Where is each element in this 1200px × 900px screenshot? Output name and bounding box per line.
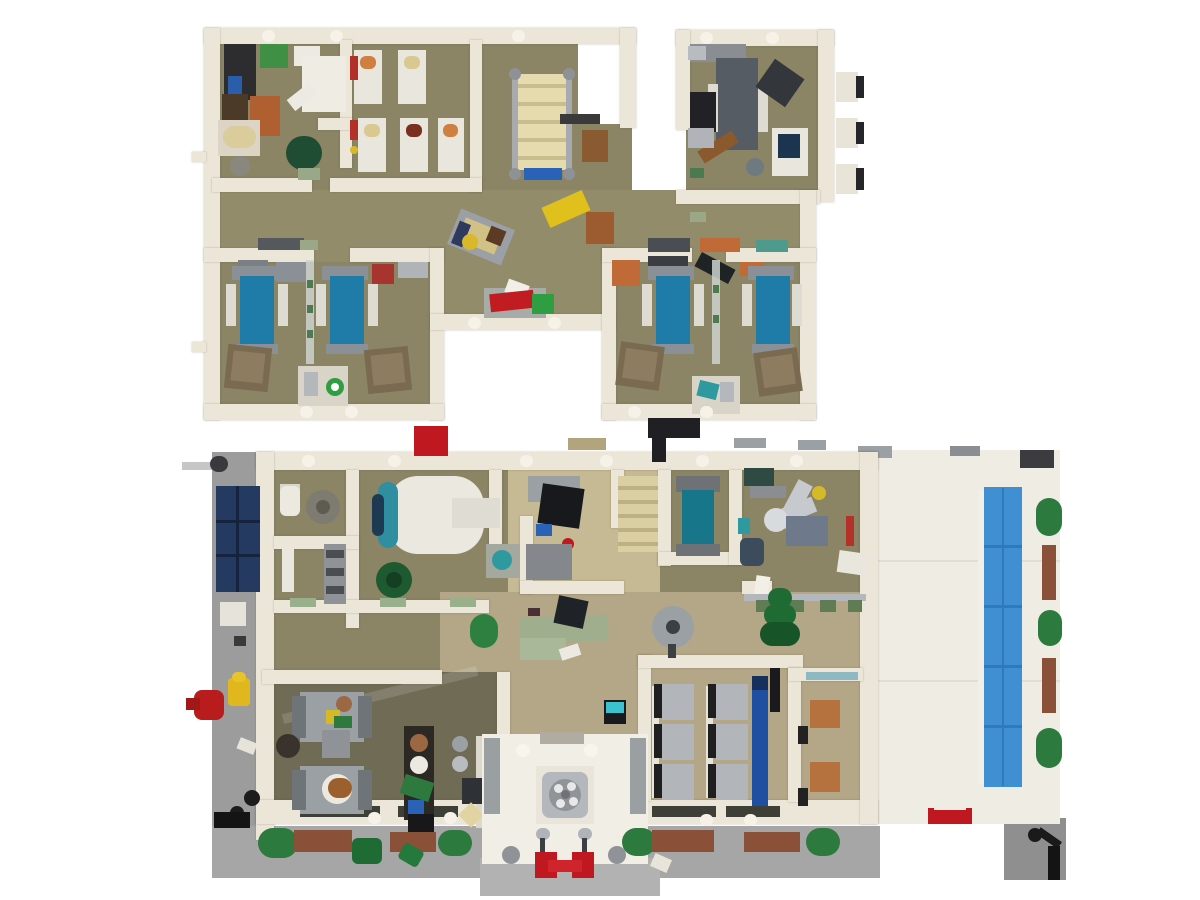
- gstair-tread-1: [618, 486, 658, 490]
- curtain-pleat-3: [820, 600, 836, 612]
- kitchen-pot-1: [452, 736, 468, 752]
- robot-yellow-dot: [812, 486, 826, 500]
- bush-front-1: [258, 828, 298, 858]
- storage-slot-3: [326, 586, 344, 594]
- monitor-screen: [606, 702, 624, 713]
- stud: [790, 455, 803, 467]
- break-croissant: [328, 778, 352, 798]
- porch-pillar-left: [484, 738, 500, 814]
- white-piece-roof-bottom: [934, 798, 966, 810]
- bush-front-4: [806, 828, 840, 856]
- vent-elbow-black: [652, 436, 666, 462]
- wall-breakroom-top: [262, 670, 442, 684]
- porch-pillar-right: [630, 738, 646, 814]
- bench-red-bar: [548, 860, 582, 872]
- paper-roll: [282, 548, 294, 592]
- ground-floor: [0, 0, 1200, 900]
- wall-xray-bottom: [520, 581, 624, 594]
- waiting-chair-arm: [708, 764, 716, 798]
- kitchen-mixer: [462, 778, 484, 804]
- pine-tier-3: [760, 622, 800, 646]
- black-bench-side: [214, 812, 250, 828]
- waiting-chair: [716, 764, 748, 800]
- gstair-tread-2: [618, 500, 658, 504]
- break-t1-green: [334, 716, 352, 728]
- planter-sage-3: [450, 598, 476, 607]
- planter-right-2: [1042, 658, 1056, 713]
- coffee-mug-brown: [410, 734, 428, 752]
- robot-plates: [750, 486, 786, 498]
- waiting-chair-arm: [654, 684, 662, 718]
- reception-stand-1: [798, 726, 808, 744]
- reception-bench-2: [810, 762, 840, 792]
- reception-stand-2: [798, 788, 808, 806]
- break-t1-chair-left: [292, 696, 306, 738]
- mri-bore-navy: [372, 494, 384, 536]
- gstair-tread-4: [618, 528, 658, 532]
- bush-front-2: [438, 830, 472, 856]
- stud: [744, 814, 757, 826]
- brick-gray-top-1: [734, 438, 766, 448]
- waiting-chair-arm: [708, 684, 716, 718]
- black-ball-1: [244, 790, 260, 806]
- sink-center: [316, 500, 330, 514]
- xray-desk: [526, 544, 572, 580]
- brick-tan-top: [568, 438, 606, 450]
- utility-dark-bit: [234, 636, 246, 646]
- bush-front-3: [622, 828, 656, 856]
- plant-round-center: [386, 572, 402, 588]
- robot-bottles: [740, 538, 764, 566]
- mug-teal: [492, 550, 512, 570]
- roof-seam-1: [874, 560, 1060, 562]
- coffee-mug-white: [410, 756, 428, 774]
- roof-cap-gray-2: [950, 446, 980, 456]
- mri-table: [452, 498, 500, 528]
- tealbed-foot: [676, 544, 720, 556]
- divider-blue-cap: [752, 676, 768, 690]
- wall-right-outer: [860, 452, 878, 824]
- waiting-chair: [716, 724, 748, 760]
- solar-line-v: [236, 486, 239, 592]
- gstair-tread-5: [618, 542, 658, 546]
- stud: [444, 812, 457, 824]
- medallion-center: [561, 790, 570, 799]
- robot-base: [786, 516, 828, 546]
- planter-front-3: [652, 830, 714, 852]
- xray-blue-brick: [536, 524, 552, 536]
- brick-gray-top-2: [798, 440, 826, 450]
- break-t1-chair-right: [358, 696, 372, 738]
- medallion-dot-3: [556, 799, 565, 808]
- coffee-black-box: [408, 814, 434, 834]
- waiting-chair: [662, 764, 694, 800]
- reception-phone: [528, 608, 540, 616]
- wheel-hub: [666, 620, 680, 634]
- toilet: [280, 486, 300, 516]
- plant-hall-left: [470, 614, 498, 648]
- robot-teal-bit: [738, 518, 750, 534]
- robot-red-strip: [846, 516, 854, 546]
- stud: [696, 455, 709, 467]
- storage-slot-1: [326, 550, 344, 558]
- storage-slot-2: [326, 568, 344, 576]
- planter-right-1: [1042, 545, 1056, 600]
- planter-sage-1: [290, 598, 316, 607]
- waiting-chair-arm: [654, 764, 662, 798]
- robot-joint: [764, 508, 788, 532]
- bush-right-1: [1036, 498, 1062, 536]
- stud: [388, 455, 401, 467]
- break-t2-chair-left: [292, 770, 306, 810]
- stud: [700, 814, 713, 826]
- planter-front-4: [744, 832, 800, 852]
- vent-pipe-black: [648, 418, 700, 438]
- hydrant-red-arm: [186, 698, 200, 710]
- lamp-post-right: [1048, 846, 1060, 880]
- hydrant-yellow-cap: [232, 672, 246, 682]
- waiting-chair-arm: [708, 724, 716, 758]
- porch-step-recess: [540, 732, 584, 744]
- waiting-chair-arm: [654, 724, 662, 758]
- roof-seam-2: [874, 680, 1060, 682]
- break-t1-bench: [322, 730, 350, 758]
- gstair-tread-3: [618, 514, 658, 518]
- glass-teal-strip: [806, 672, 858, 680]
- wall-top-outer: [256, 452, 878, 470]
- robot-cabinet-darkteal: [744, 468, 774, 486]
- waiting-chair: [662, 684, 694, 720]
- reception-bench-1: [810, 700, 840, 728]
- wheel-stem: [668, 644, 676, 658]
- plant-spiky-front: [352, 838, 382, 864]
- robot-white-box: [837, 550, 870, 576]
- wall-waiting-top: [638, 655, 803, 668]
- stud: [600, 455, 613, 467]
- medallion-dot-2: [567, 782, 576, 791]
- waiting-chair: [662, 724, 694, 760]
- porch-stud-2: [584, 744, 598, 757]
- roof-cap-dark: [1020, 450, 1054, 468]
- render-canvas: [0, 0, 1200, 900]
- red-piece-roof-bottom: [928, 808, 972, 824]
- door-black: [770, 668, 780, 712]
- planter-sage-2: [380, 598, 406, 607]
- reception-chair-black: [553, 595, 588, 629]
- roof-section: [874, 450, 1060, 824]
- break-dark-table: [276, 734, 300, 758]
- antenna-ball: [210, 456, 228, 472]
- awning-center-seam: [1002, 488, 1004, 786]
- bush-right-2: [1038, 610, 1062, 646]
- planter-front-1: [294, 830, 352, 852]
- hydrant-yellow: [228, 678, 250, 706]
- divider-blue: [752, 676, 768, 806]
- break-t2-chair-right: [358, 770, 372, 810]
- stud: [520, 455, 533, 467]
- porch-ball-left: [502, 846, 520, 864]
- kitchen-pot-2: [452, 756, 468, 772]
- bush-right-3: [1036, 728, 1062, 768]
- stud: [368, 812, 381, 824]
- curtain-pleat-4: [848, 600, 862, 612]
- xray-camera: [537, 483, 584, 528]
- utility-white-box: [220, 602, 246, 626]
- chimney-red: [414, 426, 448, 456]
- coffee-blue-bin: [408, 800, 424, 814]
- porch-stud-1: [516, 744, 530, 757]
- medallion-dot-4: [569, 797, 578, 806]
- waiting-chair: [716, 684, 748, 720]
- tealbed: [682, 490, 714, 548]
- stud: [302, 455, 315, 467]
